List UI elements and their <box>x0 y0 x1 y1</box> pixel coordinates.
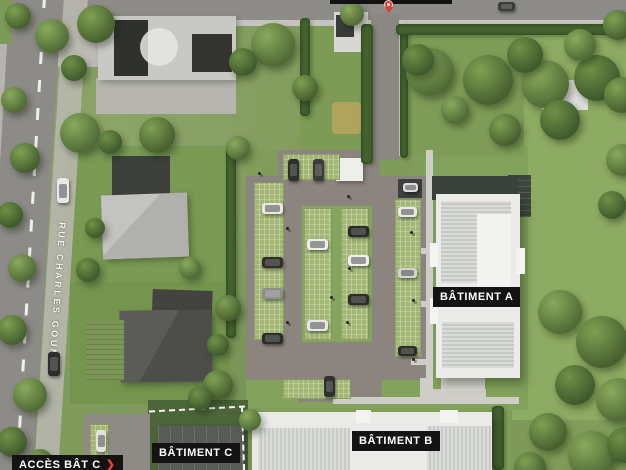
walkway <box>420 378 430 399</box>
car <box>262 333 283 344</box>
car <box>288 159 299 181</box>
building-c-label: BÂTIMENT C <box>152 443 240 463</box>
tree <box>8 254 36 282</box>
building-a-roof-white-inner <box>477 214 511 288</box>
tree <box>555 365 595 405</box>
street-lamp <box>412 299 415 302</box>
tree <box>98 130 122 154</box>
building-b-label: BÂTIMENT B <box>352 431 440 451</box>
tree <box>340 2 364 26</box>
existing-house-3-roof <box>119 309 212 383</box>
building-a-terrace <box>441 376 485 391</box>
existing-house-1-roof-curve <box>140 28 178 66</box>
tree <box>463 55 513 105</box>
access-direction-arrow-icon: ❯ <box>106 459 116 470</box>
parking-stall <box>283 379 351 399</box>
tree <box>529 413 567 451</box>
car <box>262 288 283 299</box>
tree <box>514 452 546 470</box>
car <box>313 159 324 181</box>
car <box>307 239 328 250</box>
building-b-roof-bump-1 <box>356 410 371 423</box>
tree <box>77 5 115 43</box>
building-a-balcony-1 <box>430 243 438 267</box>
street-lamp <box>330 296 333 299</box>
tree <box>13 378 47 412</box>
tree <box>598 191 626 219</box>
tree <box>215 295 241 321</box>
car <box>398 268 417 278</box>
car <box>398 207 417 217</box>
car-windshield <box>401 270 414 276</box>
car-windshield <box>98 435 105 447</box>
tree <box>402 44 434 76</box>
car-windshield <box>351 296 366 302</box>
existing-house-2-roof <box>101 193 189 260</box>
car <box>48 352 60 376</box>
tree <box>564 29 596 61</box>
building-c-label-text: BÂTIMENT C <box>159 447 233 459</box>
hedge <box>361 24 373 164</box>
car <box>96 430 106 452</box>
car <box>57 178 69 203</box>
tree <box>179 257 201 279</box>
tree <box>76 258 100 282</box>
street-lamp <box>410 231 413 234</box>
garden-patch <box>332 102 361 134</box>
car-windshield <box>265 259 280 265</box>
building-a-roof-ribbed-bottom <box>442 322 514 368</box>
car <box>348 255 369 266</box>
car-windshield <box>501 4 513 9</box>
tree <box>603 10 626 40</box>
building-b-roof-ribbed-left <box>258 428 350 470</box>
street-lamp <box>347 195 350 198</box>
tree <box>60 113 100 153</box>
street-lamp <box>412 358 415 361</box>
hedge <box>300 18 310 116</box>
tree <box>538 290 582 334</box>
parking-stall <box>395 199 421 357</box>
car <box>262 203 283 214</box>
car-windshield <box>59 184 67 198</box>
street-lamp <box>258 172 261 175</box>
walkway <box>488 397 518 404</box>
existing-house-1-yard <box>96 78 236 114</box>
tree <box>1 87 27 113</box>
street-lamp <box>286 321 289 324</box>
tree <box>441 96 469 124</box>
car <box>398 346 417 356</box>
car <box>307 320 328 331</box>
tree <box>576 316 626 368</box>
tree <box>188 386 212 410</box>
car-windshield <box>265 290 280 296</box>
street-lamp <box>286 227 289 230</box>
building-b-label-text: BÂTIMENT B <box>359 435 433 447</box>
existing-house-1-roof-dark-b <box>192 34 232 72</box>
green-roof-annex <box>86 320 124 380</box>
tree <box>292 75 318 101</box>
access-building-c-label: ACCÈS BÂT C❯ <box>12 455 123 470</box>
tree <box>85 218 105 238</box>
tree <box>35 19 69 53</box>
tree <box>139 117 175 153</box>
car-windshield <box>351 257 366 263</box>
tree <box>540 100 580 140</box>
car-windshield <box>310 322 325 328</box>
tree <box>61 55 87 81</box>
car <box>403 183 418 192</box>
car-windshield <box>310 241 325 247</box>
tree <box>239 409 261 431</box>
entrance-pin-dot <box>387 3 390 6</box>
tree <box>229 48 257 76</box>
car-windshield <box>351 228 366 234</box>
building-a-label-text: BÂTIMENT A <box>440 291 513 303</box>
access-building-c-label-text: ACCÈS BÂT C <box>19 459 101 470</box>
car-windshield <box>405 185 416 190</box>
hedge <box>400 24 408 158</box>
street-lamp <box>348 267 351 270</box>
site-entry-driveway <box>371 14 399 160</box>
car-windshield <box>265 335 280 341</box>
car-windshield <box>290 164 298 176</box>
street-lamp <box>346 321 349 324</box>
white-garage <box>336 158 363 181</box>
car <box>498 2 515 11</box>
entrance-pin-icon <box>383 0 395 13</box>
car-windshield <box>315 164 323 176</box>
hedge <box>492 406 504 470</box>
site-plan-aerial-view: RUE CHARLES GOUNOD BÂTIMENT A BÂTIMENT B… <box>0 0 626 470</box>
car-windshield <box>401 209 414 215</box>
tree <box>507 37 543 73</box>
car-windshield <box>265 205 280 211</box>
car <box>262 257 283 268</box>
tree <box>5 3 31 29</box>
building-a-label: BÂTIMENT A <box>433 287 520 307</box>
building-b-roof-bump-2 <box>440 410 458 423</box>
tree <box>207 334 229 356</box>
entrance-pin-tip <box>385 7 393 13</box>
car-windshield <box>401 348 414 354</box>
tree <box>10 143 40 173</box>
tree <box>226 136 250 160</box>
building-a-balcony-3 <box>516 248 525 274</box>
car-windshield <box>50 357 58 370</box>
tree <box>251 23 295 67</box>
car <box>324 376 335 397</box>
car <box>348 294 369 305</box>
tree <box>489 114 521 146</box>
car-windshield <box>326 381 334 393</box>
car <box>348 226 369 237</box>
